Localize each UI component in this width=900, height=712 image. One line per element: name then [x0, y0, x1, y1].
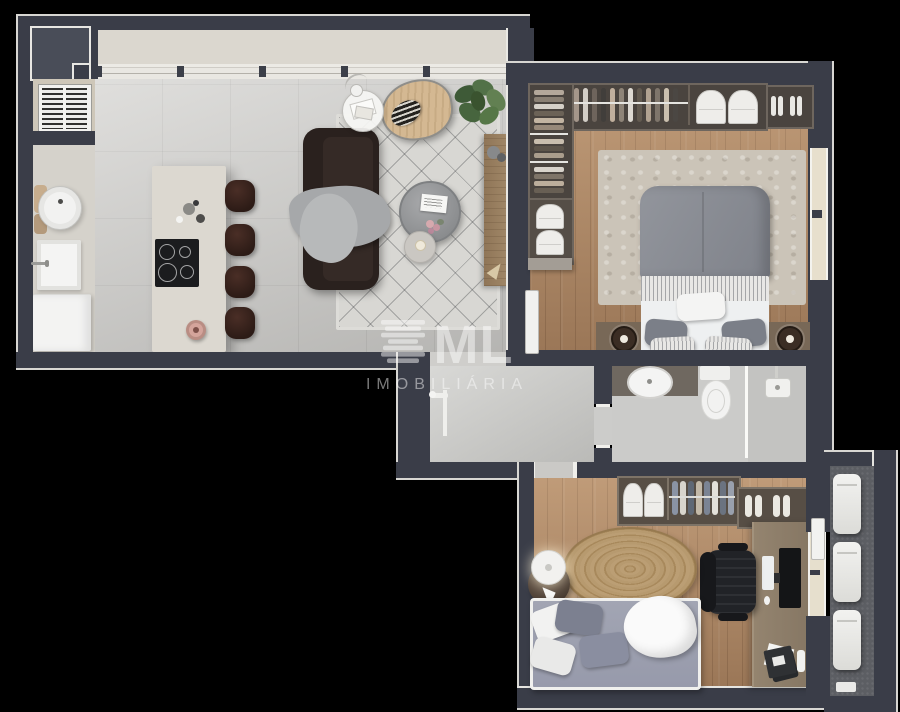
folded-clothes	[534, 111, 564, 116]
folded-garment	[644, 483, 664, 517]
magazine	[420, 194, 448, 214]
shoe	[783, 495, 790, 517]
duvet-fold-line	[702, 192, 704, 272]
laundry-round-basin	[38, 186, 82, 230]
bedside-sconce	[777, 326, 803, 352]
bathroom-left-wall-lower	[594, 448, 612, 462]
folded-clothes	[534, 167, 564, 172]
terrace-floor	[95, 30, 520, 65]
hanging-garment	[601, 88, 606, 122]
bar-stool	[225, 266, 255, 298]
hanging-garment	[646, 88, 651, 122]
window-mullion	[812, 210, 822, 218]
bedroom1-top-wall	[506, 61, 834, 85]
bedroom1-bottom-wall	[506, 350, 832, 366]
pillow-gray	[578, 631, 630, 669]
burner	[180, 265, 194, 279]
folded-clothes	[534, 153, 564, 158]
hanging-garment	[637, 88, 642, 122]
shelf-board	[528, 258, 572, 270]
door-post	[177, 66, 184, 77]
hallway-floor	[428, 366, 594, 462]
laundry-sink	[37, 240, 81, 290]
hanging-garment	[704, 481, 710, 515]
sink-drain	[647, 379, 652, 384]
island-bowl	[196, 214, 205, 223]
shower-glass-partition	[745, 366, 748, 458]
hanging-garment	[696, 481, 702, 515]
bedroom2-wardrobe	[617, 476, 741, 526]
laundry-divider-wall	[30, 131, 96, 145]
side-table	[342, 90, 384, 132]
bedroom1-towel-cabinet	[528, 198, 574, 262]
monitor-stand	[774, 573, 780, 583]
hanging-garment	[728, 481, 734, 515]
folded-towel	[536, 230, 564, 255]
faucet-icon	[45, 260, 49, 267]
glass-mullion	[810, 570, 820, 575]
closet-divider	[667, 478, 669, 520]
hanging-garment	[664, 88, 669, 122]
shoe	[773, 495, 780, 517]
hanging-garment	[592, 88, 597, 122]
sun-lounger	[833, 610, 861, 670]
bedroom1-door-leaf	[525, 290, 539, 354]
shoe	[745, 495, 752, 517]
bedroom2-right-wall-lower	[806, 616, 830, 706]
closet-rod	[570, 102, 688, 104]
folded-linen	[728, 90, 758, 124]
shoe	[790, 96, 795, 116]
hanging-garment	[610, 88, 615, 122]
shower-head-dot	[775, 385, 780, 390]
shoe	[778, 96, 783, 116]
hanging-garment	[619, 88, 624, 122]
shower-pipe	[775, 366, 778, 378]
folded-linen	[696, 90, 726, 124]
closet-rod	[669, 496, 735, 498]
hanging-garment	[628, 88, 633, 122]
burner	[158, 263, 177, 282]
island-jar	[193, 200, 199, 206]
floorplan-render: ML IMOBILIÁRIA	[0, 0, 900, 712]
folded-clothes	[534, 139, 564, 144]
hanging-garment	[672, 481, 678, 515]
burner	[159, 244, 175, 260]
technical-shaft	[30, 26, 91, 81]
bedside-sconce	[611, 326, 637, 352]
chair-backrest	[700, 552, 716, 612]
shoe	[797, 96, 802, 116]
louver-slats	[66, 88, 87, 129]
monitor	[779, 548, 801, 608]
folded-clothes	[534, 118, 564, 123]
folded-clothes	[534, 174, 564, 179]
lamp-shade	[350, 84, 363, 97]
balcony-door-leaf	[811, 518, 825, 560]
chair-armrest	[718, 613, 748, 621]
lamp-top-dot	[545, 564, 552, 571]
shaft-notch	[72, 63, 89, 79]
flower	[433, 224, 440, 231]
bathroom-door-opening-floor	[594, 407, 612, 445]
basin-drain	[58, 199, 63, 204]
shoe	[771, 96, 776, 116]
office-chair	[706, 550, 756, 614]
folded-garment	[623, 483, 643, 517]
hanging-garment	[583, 88, 588, 122]
bathroom-left-wall-upper	[594, 350, 612, 404]
bar-stool	[225, 224, 255, 256]
terrace-glass-door-track	[95, 64, 520, 79]
magazine-text-lines	[424, 198, 443, 209]
burner	[179, 246, 191, 258]
door-post	[259, 66, 266, 77]
bathroom-sink	[627, 366, 673, 399]
louver-slats	[42, 88, 63, 129]
door-post	[423, 66, 430, 77]
hanging-garment	[688, 481, 694, 515]
folded-clothes	[534, 104, 564, 109]
table-lamp	[531, 550, 566, 585]
folded-clothes	[534, 97, 564, 102]
bed1-duvet	[640, 186, 770, 278]
vase	[497, 153, 506, 162]
living-bottom-wall	[16, 352, 426, 370]
rose-center	[193, 327, 199, 333]
tablet-on-floor	[763, 645, 796, 678]
hall-bottom-wall-left	[396, 462, 535, 480]
cooktop	[155, 239, 199, 287]
chair-armrest	[718, 543, 748, 551]
island-cup	[176, 216, 183, 223]
hanging-garment	[673, 88, 678, 122]
toilet-seat-line	[707, 389, 725, 413]
hanging-garment	[720, 481, 726, 515]
folded-clothes	[534, 125, 564, 130]
tablet-screen	[772, 655, 786, 666]
closet-shelf-line	[530, 133, 568, 135]
remote-control	[797, 650, 805, 672]
candle	[415, 240, 426, 251]
hanging-garment	[655, 88, 660, 122]
closet-shelf-line	[530, 161, 568, 163]
rose-plant-pot	[186, 320, 206, 340]
pillow-white	[676, 291, 726, 321]
closet-divider	[688, 85, 690, 125]
folded-clothes	[534, 181, 564, 186]
bedroom1-shoe-shelf	[766, 85, 814, 129]
folded-clothes	[534, 146, 564, 151]
louvered-unit	[38, 84, 92, 133]
coat-rack-knob	[429, 391, 436, 398]
washing-machine	[33, 294, 91, 351]
toilet-bowl	[701, 380, 731, 420]
sun-lounger	[833, 542, 861, 602]
keyboard	[762, 556, 774, 590]
folded-clothes	[534, 90, 564, 95]
bar-stool	[225, 180, 255, 212]
bedroom1-window	[810, 148, 828, 280]
balcony-bottom-wall	[824, 696, 894, 712]
hanging-garment	[680, 481, 686, 515]
hallway-left-wall	[396, 352, 430, 470]
flower-leaves	[437, 219, 444, 225]
potted-plant	[448, 78, 510, 132]
hanging-garment	[712, 481, 718, 515]
folded-towel	[536, 204, 564, 229]
decor-cone	[486, 260, 505, 280]
hanging-garment	[574, 88, 579, 122]
shoe	[755, 495, 762, 517]
door-post	[341, 66, 348, 77]
mouse	[764, 596, 770, 605]
folded-clothes	[534, 188, 564, 193]
bedroom2-door-opening-floor	[535, 462, 573, 478]
shower-head	[765, 378, 791, 398]
bar-stool	[225, 307, 255, 339]
coffee-table-small	[404, 231, 436, 263]
sun-lounger	[833, 474, 861, 534]
toilet-tank	[700, 366, 730, 380]
balcony-mat	[836, 682, 856, 692]
balcony-right-wall	[872, 450, 898, 712]
